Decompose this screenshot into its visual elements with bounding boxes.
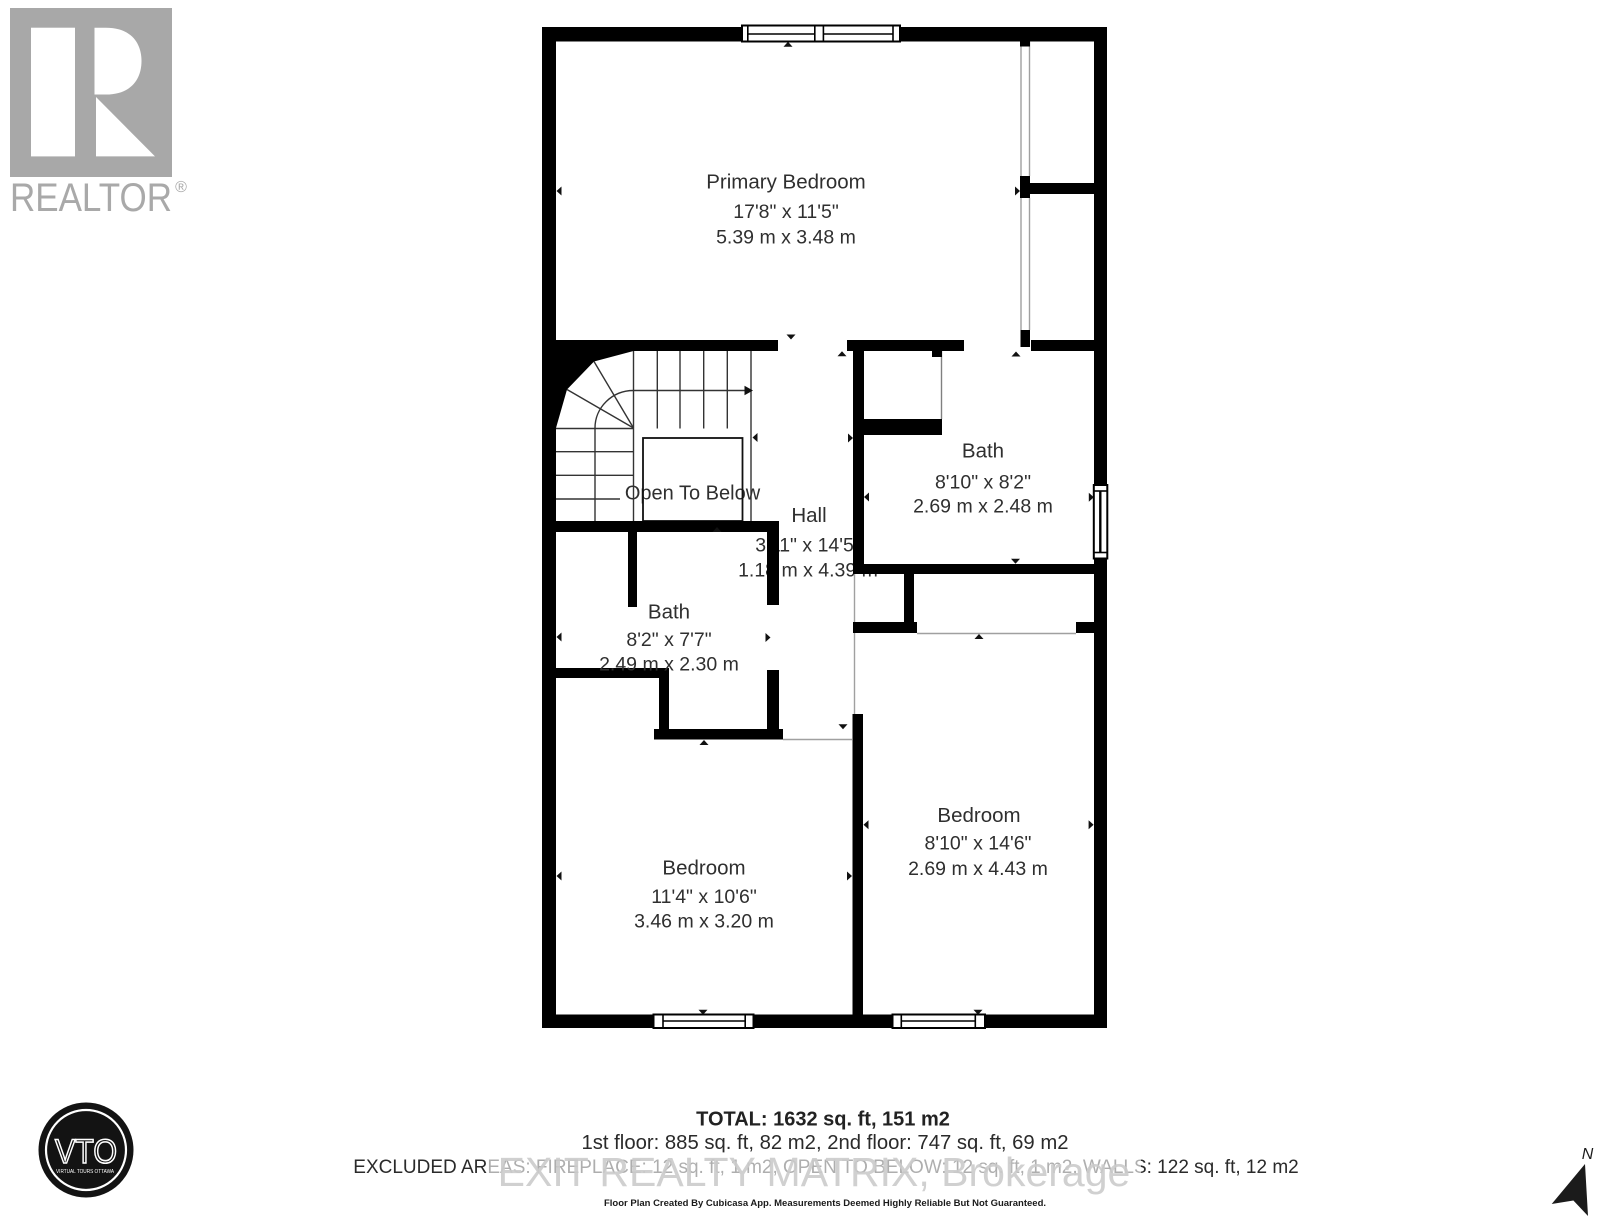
svg-text:Bath: Bath <box>962 440 1004 463</box>
svg-text:2.69 m x 2.48 m: 2.69 m x 2.48 m <box>913 496 1053 518</box>
svg-text:N: N <box>1582 1146 1594 1163</box>
svg-text:11'4" x 10'6": 11'4" x 10'6" <box>651 886 757 908</box>
svg-text:8'10" x 8'2": 8'10" x 8'2" <box>935 472 1031 494</box>
svg-text:Hall: Hall <box>791 504 826 527</box>
svg-text:3.46 m x 3.20 m: 3.46 m x 3.20 m <box>634 911 774 933</box>
svg-text:VTO: VTO <box>55 1133 117 1171</box>
svg-text:Primary Bedroom: Primary Bedroom <box>706 171 866 194</box>
svg-text:2.69 m x 4.43 m: 2.69 m x 4.43 m <box>908 858 1048 880</box>
svg-text:®: ® <box>175 179 187 196</box>
svg-text:EXIT REALTY MATRIX, Brokerage: EXIT REALTY MATRIX, Brokerage <box>498 1149 1131 1195</box>
svg-text:8'2" x 7'7": 8'2" x 7'7" <box>626 629 711 651</box>
svg-text:5.39 m x 3.48 m: 5.39 m x 3.48 m <box>716 227 856 249</box>
svg-text:Bath: Bath <box>648 601 690 624</box>
svg-text:VIRTUAL TOURS OTTAWA: VIRTUAL TOURS OTTAWA <box>56 1169 114 1175</box>
svg-text:Floor Plan Created By Cubicasa: Floor Plan Created By Cubicasa App. Meas… <box>604 1198 1046 1209</box>
svg-text:Bedroom: Bedroom <box>662 857 745 880</box>
svg-text:REALTOR: REALTOR <box>10 176 172 220</box>
svg-text:TOTAL: 1632 sq. ft, 151 m2: TOTAL: 1632 sq. ft, 151 m2 <box>696 1109 950 1131</box>
svg-text:17'8" x 11'5": 17'8" x 11'5" <box>733 201 839 223</box>
svg-text:8'10" x 14'6": 8'10" x 14'6" <box>925 833 1032 855</box>
svg-text:Bedroom: Bedroom <box>937 804 1020 827</box>
svg-text:2.49 m x 2.30 m: 2.49 m x 2.30 m <box>599 654 739 676</box>
svg-text:Open To Below: Open To Below <box>625 482 761 504</box>
